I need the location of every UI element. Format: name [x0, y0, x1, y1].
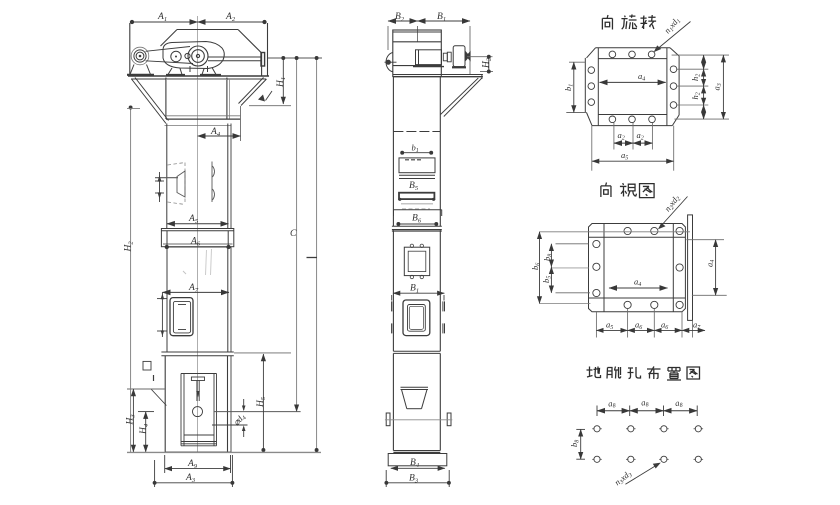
svg-text:a8: a8: [640, 397, 649, 409]
svg-text:a8: a8: [607, 398, 616, 410]
svg-text:H3: H3: [126, 414, 137, 426]
svg-text:B2: B2: [395, 12, 405, 23]
svg-text:a7: a7: [693, 320, 701, 332]
svg-text:b5: b5: [541, 276, 553, 283]
svg-text:b8: b8: [542, 254, 554, 261]
svg-text:A2: A2: [225, 12, 236, 23]
svg-text:A9: A9: [187, 459, 198, 470]
svg-text:b1: b1: [412, 143, 419, 155]
svg-text:H4: H4: [139, 423, 150, 435]
svg-text:A4: A4: [210, 127, 221, 138]
svg-text:A6: A6: [190, 237, 201, 248]
svg-text:a2: a2: [618, 130, 625, 142]
svg-text:h2: h2: [690, 92, 702, 99]
svg-text:H2: H2: [482, 57, 493, 69]
svg-text:b1: b1: [563, 84, 575, 91]
svg-text:n1xd1: n1xd1: [662, 15, 683, 36]
svg-text:C: C: [290, 229, 297, 239]
svg-text:A1: A1: [157, 12, 167, 23]
svg-text:b8: b8: [569, 440, 581, 447]
svg-text:a5: a5: [621, 150, 628, 162]
svg-text:⌀d4: ⌀d4: [231, 412, 248, 429]
svg-text:a4: a4: [634, 277, 641, 289]
svg-text:b6: b6: [530, 263, 542, 270]
svg-text:a3: a3: [712, 83, 724, 90]
svg-text:h2: h2: [690, 74, 702, 81]
svg-text:a4: a4: [638, 71, 645, 83]
svg-text:A7: A7: [188, 283, 199, 294]
svg-text:A5: A5: [188, 214, 199, 225]
svg-text:B4: B4: [410, 458, 420, 469]
svg-text:a8: a8: [674, 397, 683, 409]
svg-text:a6: a6: [635, 320, 642, 332]
svg-text:B1: B1: [437, 12, 446, 23]
svg-text:a2: a2: [637, 130, 644, 142]
svg-text:B6: B6: [412, 214, 422, 225]
svg-text:n2xd2: n2xd2: [662, 193, 682, 214]
svg-text:a5: a5: [606, 320, 613, 332]
svg-text:H5: H5: [256, 396, 267, 408]
svg-text:a4: a4: [705, 260, 717, 267]
svg-text:a6: a6: [661, 320, 668, 332]
svg-text:n3xd3: n3xd3: [612, 468, 633, 488]
svg-text:H2: H2: [124, 241, 135, 253]
svg-text:B5: B5: [409, 181, 419, 192]
svg-text:A3: A3: [185, 473, 196, 484]
svg-text:H1: H1: [276, 77, 287, 88]
